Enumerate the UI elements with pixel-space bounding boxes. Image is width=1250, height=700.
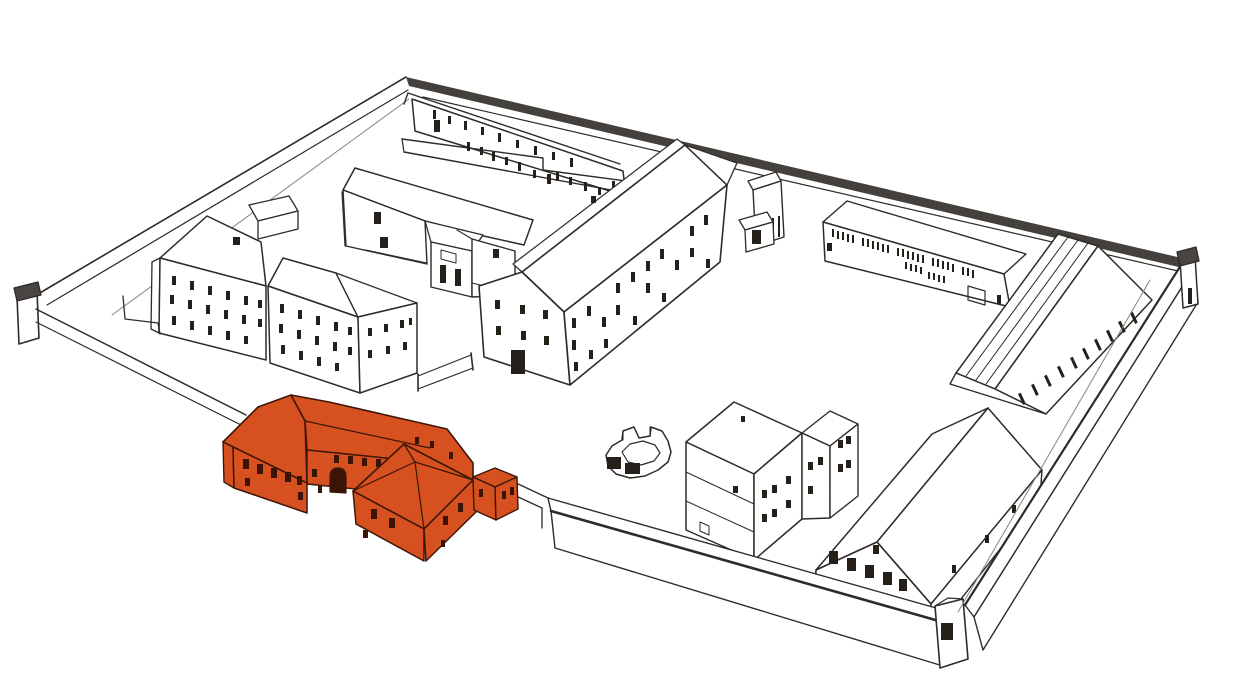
west-block-a-windows-mark bbox=[188, 300, 192, 309]
yard-wall-post-right bbox=[471, 353, 473, 370]
courtyard-block-side-windows-mark bbox=[786, 500, 791, 508]
central-block-facade-windows-mark bbox=[602, 317, 606, 327]
highlighted-annex-windows-mark bbox=[502, 491, 506, 499]
central-block-roof-dot-mark bbox=[591, 196, 596, 203]
north-range-windows-lower-mark bbox=[569, 177, 572, 185]
north-range-windows-lower-mark bbox=[518, 162, 521, 171]
highlighted-courtyard-windows-mark bbox=[362, 458, 367, 466]
north-range-windows-upper-mark bbox=[448, 116, 451, 124]
west-block-a-windows-mark bbox=[258, 319, 262, 327]
central-block-facade-windows-mark bbox=[646, 283, 650, 293]
central-block-facade-windows-mark bbox=[675, 260, 679, 270]
central-block-facade-windows-mark bbox=[706, 259, 710, 268]
west-block-b-side-windows-mark bbox=[403, 342, 407, 350]
courtyard-block-side-windows-mark bbox=[772, 509, 777, 517]
courtyard-block-dots-mark bbox=[733, 486, 738, 493]
central-block-gable-windows-mark bbox=[521, 331, 526, 340]
west-block-a-windows-mark bbox=[190, 321, 194, 330]
east-workshop-slits-mark bbox=[852, 235, 854, 243]
south-barn-vent bbox=[873, 545, 879, 554]
east-workshop-slits-mark bbox=[837, 231, 839, 239]
north-range-windows-lower-mark bbox=[556, 172, 559, 181]
courtyard-annex-windows-mark bbox=[808, 486, 813, 494]
north-range-windows-upper-mark bbox=[433, 110, 436, 119]
north-range-windows-upper-mark bbox=[464, 121, 467, 130]
west-block-b-windows-mark bbox=[315, 336, 319, 345]
central-block-facade-windows-mark bbox=[646, 261, 650, 271]
south-barn-side-marks-mark bbox=[952, 565, 956, 573]
west-block-b-windows-mark bbox=[279, 324, 283, 333]
courtyard-block-side-windows-mark bbox=[762, 490, 767, 498]
west-block-b-side-windows-mark bbox=[368, 350, 372, 358]
west-block-a-windows-mark bbox=[206, 305, 210, 314]
west-block-a-windows-mark bbox=[226, 291, 230, 300]
east-workshop-slits-mark bbox=[920, 267, 922, 274]
west-block-b-windows-mark bbox=[316, 316, 320, 325]
central-annex-door-mark bbox=[752, 230, 761, 244]
highlighted-arch-doorway[interactable] bbox=[330, 468, 346, 493]
rear-house-windows-mark bbox=[380, 237, 388, 248]
courtyard-block-side-windows-mark bbox=[772, 485, 777, 493]
west-block-b-windows-mark bbox=[281, 345, 285, 354]
courtyard-annex-windows-mark bbox=[838, 464, 843, 472]
west-block-a-windows-mark bbox=[208, 286, 212, 295]
north-range-windows-upper-mark bbox=[434, 120, 440, 132]
rear-house-windows-mark bbox=[374, 212, 381, 224]
east-workshop-slits-mark bbox=[910, 264, 912, 271]
central-block-facade-windows-mark bbox=[616, 305, 620, 315]
central-block-gable-windows-mark bbox=[495, 300, 500, 309]
courtyard-annex-windows-mark bbox=[846, 460, 851, 468]
courtyard-annex-windows-mark bbox=[818, 457, 823, 465]
rear-porch-windows-mark bbox=[440, 265, 446, 283]
north-range-windows-upper-mark bbox=[481, 127, 484, 135]
north-range-windows-lower-mark bbox=[533, 170, 536, 178]
rear-porch-windows-mark bbox=[455, 269, 461, 286]
north-range-windows-lower-mark bbox=[598, 187, 601, 195]
central-block-gable-windows-mark bbox=[544, 336, 549, 345]
west-block-a-windows-mark bbox=[224, 310, 228, 319]
west-block-b-windows-mark bbox=[348, 347, 352, 355]
north-range-windows-lower-mark bbox=[480, 147, 483, 155]
east-workshop-slits-mark bbox=[867, 239, 869, 247]
courtyard-annex-windows-mark bbox=[846, 436, 851, 444]
central-block-facade-windows-mark bbox=[589, 350, 593, 359]
yard-wall-top-line bbox=[418, 355, 471, 376]
highlighted-rear-wing-windows-mark bbox=[430, 441, 434, 448]
east-workshop-slits-mark bbox=[917, 254, 919, 262]
west-block-a-windows-mark bbox=[244, 296, 248, 305]
site-plan-svg bbox=[0, 0, 1250, 700]
east-workshop-slits-mark bbox=[938, 275, 940, 282]
corner-post-east-mark bbox=[1188, 288, 1192, 304]
north-range-windows-lower-mark bbox=[505, 157, 508, 165]
highlighted-west-wing-windows-mark bbox=[298, 492, 303, 500]
central-block-facade-windows-mark bbox=[631, 272, 635, 282]
highlighted-courtyard-windows-mark bbox=[348, 456, 353, 464]
central-block-facade-windows-mark bbox=[574, 362, 578, 371]
east-workshop-slits-mark bbox=[912, 252, 914, 260]
west-block-b-windows-mark bbox=[335, 363, 339, 371]
central-block-gable-windows-mark bbox=[543, 310, 548, 319]
highlighted-west-wing-windows-mark bbox=[285, 472, 291, 482]
north-range-windows-upper-mark bbox=[534, 146, 537, 155]
courtyard-annex-windows-mark bbox=[808, 462, 813, 470]
highlighted-annex-windows-mark bbox=[479, 489, 483, 497]
east-workshop-slits-mark bbox=[942, 261, 944, 269]
west-block-a-windows-mark bbox=[190, 281, 194, 290]
west-block-b-windows-mark bbox=[333, 342, 337, 351]
west-block-b-windows-mark bbox=[317, 357, 321, 366]
west-block-a-windows-mark bbox=[172, 316, 176, 325]
north-range-windows-lower-mark bbox=[584, 182, 587, 191]
highlighted-front-wing-windows-mark bbox=[371, 509, 377, 519]
west-block-a-windows-mark bbox=[242, 315, 246, 324]
highlighted-west-wing-windows-mark bbox=[297, 476, 302, 485]
west-block-b-windows-mark bbox=[297, 330, 301, 339]
east-workshop-slits-mark bbox=[952, 264, 954, 272]
east-workshop-slits-mark bbox=[947, 262, 949, 270]
north-range-windows-upper-mark bbox=[516, 140, 519, 148]
east-workshop-slits-mark bbox=[915, 265, 917, 272]
west-block-b-side-windows-mark bbox=[386, 346, 390, 354]
highlighted-front-wing-side-windows-mark bbox=[458, 503, 463, 512]
east-workshop-slits-mark bbox=[967, 268, 969, 276]
rear-tower-window bbox=[493, 249, 499, 258]
south-barn-gable-windows-mark bbox=[865, 565, 874, 578]
north-range-windows-upper-mark bbox=[498, 133, 501, 142]
highlighted-west-wing-windows-mark bbox=[271, 468, 277, 478]
central-block-facade-windows-mark bbox=[587, 306, 591, 316]
highlighted-front-wing-side-windows-mark bbox=[441, 540, 445, 547]
east-workshop-slits-mark bbox=[902, 249, 904, 257]
central-block-facade-windows-mark bbox=[690, 226, 694, 236]
east-workshop-slits-mark bbox=[877, 242, 879, 250]
highlighted-courtyard-windows-mark bbox=[312, 469, 317, 477]
central-block-gable-windows-mark bbox=[496, 326, 501, 335]
south-barn-gable-windows-mark bbox=[829, 551, 838, 564]
central-block-facade-windows-mark bbox=[616, 283, 620, 293]
west-block-a-chimney bbox=[233, 237, 240, 245]
north-range-windows-lower-mark bbox=[467, 142, 470, 151]
south-barn-gable-windows-mark bbox=[899, 579, 907, 591]
yard-wall-base-line bbox=[418, 368, 473, 389]
east-workshop-slits-mark bbox=[887, 245, 889, 253]
highlighted-west-wing-windows-mark bbox=[245, 478, 250, 486]
east-workshop-slits-mark bbox=[832, 229, 834, 237]
wall-gate-jog-mid bbox=[516, 496, 542, 528]
central-annex-door bbox=[752, 230, 761, 244]
east-workshop-slits-mark bbox=[997, 295, 1001, 304]
courtyard-block-side-windows-mark bbox=[762, 514, 767, 522]
wall-gate-jog-top bbox=[516, 483, 548, 498]
north-range-windows-lower-mark bbox=[492, 152, 495, 161]
west-block-a-windows-mark bbox=[258, 300, 262, 308]
west-block-a-windows-mark bbox=[226, 331, 230, 340]
east-workshop-slits-mark bbox=[905, 262, 907, 269]
west-block-b-side-windows-mark bbox=[384, 324, 388, 332]
central-block-facade-windows-mark bbox=[633, 316, 637, 325]
east-workshop-slits-mark bbox=[842, 232, 844, 240]
highlighted-front-wing-windows-mark bbox=[389, 518, 395, 528]
east-workshop-slits-mark bbox=[933, 273, 935, 280]
rear-porch-facade bbox=[431, 242, 472, 297]
central-annex-slats-mark bbox=[778, 216, 780, 237]
east-workshop-slits-mark bbox=[897, 248, 899, 256]
north-range-windows-upper-mark bbox=[552, 152, 555, 160]
highlighted-front-wing-windows-mark bbox=[363, 530, 368, 538]
east-workshop-slits-mark bbox=[922, 255, 924, 263]
east-workshop-slits-mark bbox=[937, 259, 939, 267]
east-workshop-slits-mark bbox=[847, 234, 849, 242]
south-barn-gable-windows-mark bbox=[847, 558, 856, 571]
east-workshop-slits-mark bbox=[872, 241, 874, 249]
ruin-rotunda bbox=[606, 427, 671, 478]
west-block-a-chimney-mark bbox=[233, 237, 240, 245]
west-block-b-windows-mark bbox=[348, 327, 352, 335]
rotunda-openings-mark bbox=[625, 463, 640, 474]
courtyard-annex-front bbox=[802, 433, 830, 519]
highlighted-west-wing-windows-mark bbox=[257, 464, 263, 474]
west-block-a-windows-mark bbox=[208, 326, 212, 335]
east-workshop-slits-mark bbox=[932, 258, 934, 266]
site-plan-illustration bbox=[0, 0, 1250, 700]
north-range-windows-upper-mark bbox=[570, 158, 573, 167]
central-block-facade-windows-mark bbox=[604, 339, 608, 348]
west-block-a-windows-mark bbox=[172, 276, 176, 285]
highlighted-courtyard-windows-mark bbox=[334, 455, 339, 463]
central-block-facade-windows-mark bbox=[690, 248, 694, 257]
east-workshop-slits-mark bbox=[907, 251, 909, 259]
corner-post-east-mark-mark bbox=[1188, 288, 1192, 304]
south-barn-gable-windows-mark bbox=[883, 572, 892, 585]
central-block-facade-windows-mark bbox=[660, 249, 664, 259]
east-workshop-slits-mark bbox=[962, 267, 964, 275]
central-block-facade-windows-mark bbox=[572, 318, 576, 328]
highlighted-building-complex[interactable] bbox=[223, 395, 518, 561]
south-barn-vent-mark bbox=[873, 545, 879, 554]
west-block-a-windows-mark bbox=[170, 295, 174, 304]
east-workshop-slits-mark bbox=[928, 272, 930, 279]
east-workshop-slits-mark bbox=[862, 238, 864, 246]
highlighted-annex-windows-mark bbox=[510, 487, 514, 495]
rear-tower-window-mark bbox=[493, 249, 499, 258]
east-workshop-slits-mark bbox=[882, 244, 884, 252]
central-block-facade-windows-mark bbox=[662, 293, 666, 302]
highlighted-west-wing-windows-mark bbox=[243, 459, 249, 469]
east-workshop-slits-mark bbox=[943, 276, 945, 283]
west-block-b-windows-mark bbox=[299, 351, 303, 360]
building-courtyard-block bbox=[686, 402, 858, 560]
west-block-b-windows-mark bbox=[298, 310, 302, 319]
west-block-a-windows-mark bbox=[244, 336, 248, 344]
building-central-block bbox=[479, 139, 784, 385]
courtyard-annex-windows-mark bbox=[838, 440, 843, 448]
highlighted-front-wing-side-windows-mark bbox=[443, 516, 448, 525]
central-block-gable-windows-mark bbox=[520, 305, 525, 314]
highlighted-courtyard-windows-mark bbox=[318, 486, 322, 493]
north-range-parapet-end bbox=[402, 139, 404, 152]
central-block-facade-windows-mark bbox=[704, 215, 708, 225]
south-barn-side-marks-mark bbox=[985, 535, 989, 543]
highlighted-rear-wing-windows-mark bbox=[415, 437, 419, 444]
west-block-b-side-windows-mark bbox=[409, 318, 412, 325]
corner-post-south-window bbox=[941, 623, 953, 640]
east-workshop-slits-mark bbox=[827, 243, 832, 251]
central-block-door bbox=[511, 350, 525, 374]
west-block-b-windows-mark bbox=[280, 304, 284, 313]
courtyard-block-side-windows-mark bbox=[786, 476, 791, 484]
west-block-b-windows-mark bbox=[334, 322, 338, 331]
north-range-windows-lower-mark bbox=[547, 174, 551, 184]
central-block-facade-windows-mark bbox=[572, 340, 576, 350]
central-block-roof-dot bbox=[591, 196, 596, 203]
west-block-b-side-windows-mark bbox=[400, 320, 404, 328]
courtyard-block-dots-mark bbox=[741, 416, 745, 422]
east-workshop-slits-mark bbox=[972, 270, 974, 278]
west-block-b-side-windows-mark bbox=[368, 328, 372, 336]
rotunda-openings-mark bbox=[607, 457, 621, 469]
corner-post-south-window-mark bbox=[941, 623, 953, 640]
highlighted-rear-wing-windows-mark bbox=[449, 452, 453, 459]
central-block-door-mark bbox=[511, 350, 525, 374]
